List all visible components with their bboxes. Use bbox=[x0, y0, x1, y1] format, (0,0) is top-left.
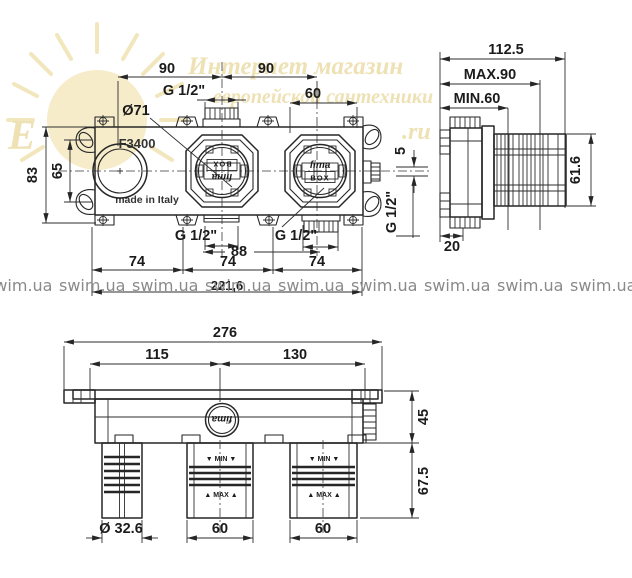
svg-text:BOX: BOX bbox=[310, 174, 329, 183]
dim-65: 65 bbox=[50, 163, 66, 179]
watermark-tile: swim.ua bbox=[205, 276, 271, 295]
svg-text:fima: fima bbox=[211, 171, 232, 182]
watermark-tile: swim.ua bbox=[278, 276, 344, 295]
dim-depth-112: 112.5 bbox=[488, 42, 524, 58]
max-marker-middle: ▲ MAX ▲ bbox=[204, 492, 237, 499]
svg-text:BOX: BOX bbox=[212, 160, 231, 169]
svg-text:fima: fima bbox=[211, 413, 232, 424]
watermark-tile: swim.ua bbox=[497, 276, 563, 295]
dim-60-middle: 60 bbox=[212, 521, 228, 537]
watermark-tile: swim.ua bbox=[570, 276, 632, 295]
dim-diameter-71: Ø71 bbox=[122, 103, 149, 119]
dim-g12-top: G 1/2" bbox=[163, 83, 205, 99]
dim-g12-side: G 1/2" bbox=[384, 191, 400, 233]
watermark-tile: swim.ua bbox=[351, 276, 417, 295]
dim-74-2: 74 bbox=[220, 254, 236, 270]
valve-port-right: ▼ MIN ▼ ▲ MAX ▲ bbox=[290, 440, 357, 533]
dim-g12-bottom-right: G 1/2" bbox=[275, 228, 317, 244]
dim-60: 60 bbox=[305, 86, 321, 102]
watermark-tile: swim.ua bbox=[132, 276, 198, 295]
dim-675: 67.5 bbox=[416, 467, 432, 495]
dim-height-616: 61.6 bbox=[568, 156, 584, 184]
side-view-body bbox=[440, 117, 566, 228]
dim-60-right: 60 bbox=[315, 521, 331, 537]
bottom-view-body: fima bbox=[64, 390, 382, 443]
watermark-big-letter: Е bbox=[7, 113, 36, 159]
technical-drawing: Интернет магазин европейской сантехники … bbox=[0, 0, 632, 578]
min-marker-middle: ▼ MIN ▼ bbox=[206, 456, 237, 463]
dim-74-3: 74 bbox=[309, 254, 325, 270]
valve-right: fima BOX bbox=[282, 135, 355, 227]
dim-45: 45 bbox=[416, 409, 432, 425]
dim-base-20: 20 bbox=[444, 239, 460, 255]
dim-5-offset: 5 bbox=[393, 147, 409, 155]
watermark-ru-suffix: .ru bbox=[402, 119, 431, 145]
dim-min-60: MIN.60 bbox=[454, 91, 501, 107]
dim-83: 83 bbox=[25, 167, 41, 183]
watermark-row: swim.ua swim.ua swim.ua swim.ua swim.ua … bbox=[0, 276, 632, 295]
dim-130: 130 bbox=[283, 347, 307, 363]
dim-74-1: 74 bbox=[129, 254, 145, 270]
dim-overall-276: 276 bbox=[213, 325, 237, 341]
bottom-dimensions: Ø 32.6 60 60 45 67.5 bbox=[86, 391, 432, 543]
model-label: F3400 bbox=[119, 136, 156, 151]
watermark-tile: swim.ua bbox=[0, 276, 52, 295]
watermark-store-line2: европейской сантехники bbox=[213, 86, 433, 108]
technical-drawing-page: Интернет магазин европейской сантехники … bbox=[0, 0, 632, 578]
dim-115: 115 bbox=[145, 347, 168, 363]
spout-connection bbox=[102, 443, 142, 518]
watermark-tile: swim.ua bbox=[59, 276, 125, 295]
watermark-tile: swim.ua bbox=[424, 276, 490, 295]
dim-g12-bottom-left: G 1/2" bbox=[175, 228, 217, 244]
dim-90-right: 90 bbox=[258, 61, 274, 77]
max-marker-right: ▲ MAX ▲ bbox=[307, 492, 340, 499]
bottom-view: 276 115 130 fima bbox=[64, 325, 432, 543]
origin-label: made in Italy bbox=[115, 194, 179, 206]
svg-text:fima: fima bbox=[310, 160, 331, 171]
valve-port-middle: ▼ MIN ▼ ▲ MAX ▲ bbox=[187, 440, 253, 533]
dim-max-90: MAX.90 bbox=[464, 67, 516, 83]
side-view: 112.5 MAX.90 MIN.60 61.6 20 bbox=[440, 42, 596, 255]
bottom-logo: fima bbox=[211, 413, 232, 424]
min-marker-right: ▼ MIN ▼ bbox=[309, 456, 340, 463]
watermark-store-line1: Интернет магазин bbox=[187, 53, 403, 80]
dim-spout-diameter: Ø 32.6 bbox=[99, 521, 143, 537]
dim-90-left: 90 bbox=[159, 61, 175, 77]
